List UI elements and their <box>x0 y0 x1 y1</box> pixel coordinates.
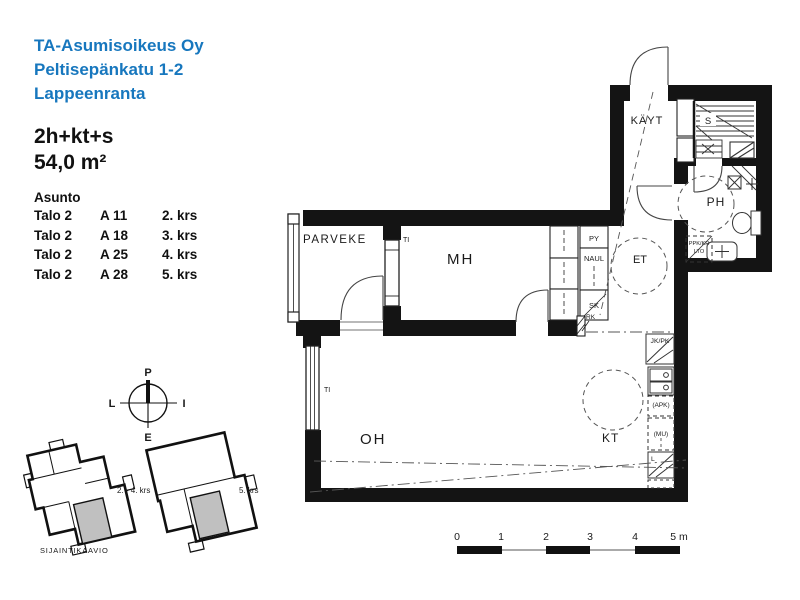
compass-west-label: L <box>109 398 116 410</box>
balcony-door <box>340 276 383 330</box>
compass-north-label: P <box>144 367 151 379</box>
shower-icon <box>728 166 758 190</box>
room-labels: PARVEKE MH OH ET KT KÄYT S PH <box>303 113 725 448</box>
living-room-window <box>306 346 319 430</box>
location-label-floors-2-4: 2. - 4. krs <box>117 486 150 495</box>
compass-east-label: I <box>182 398 185 410</box>
label-drying-cabinet: PY <box>589 234 599 243</box>
counter-end <box>648 480 674 488</box>
bedroom-balcony-window <box>385 240 399 306</box>
scale-tick-3: 3 <box>587 531 593 543</box>
room-label-living: OH <box>360 431 387 448</box>
label-electrical-panel: RK <box>586 314 596 321</box>
room-label-sauna: S <box>705 116 711 127</box>
floor-plan-page: TA-Asumisoikeus Oy Peltisepänkatu 1-2 La… <box>0 0 800 600</box>
scale-tick-4: 4 <box>632 531 638 543</box>
scale-tick-2: 2 <box>543 531 549 543</box>
compass: P E L I <box>109 367 186 444</box>
scale-tick-5: 5 m <box>670 531 688 543</box>
floor-plan: PARVEKE MH OH ET KT KÄYT S PH PY NAUL SK… <box>288 47 772 502</box>
sauna-fixtures <box>696 104 754 158</box>
hall-wardrobes <box>550 226 608 336</box>
room-label-bathroom: PH <box>707 195 726 209</box>
kitchen-turning-circle <box>583 370 643 430</box>
scale-tick-0: 0 <box>454 531 460 543</box>
stove-icon <box>648 367 674 395</box>
balcony-railing <box>288 214 299 322</box>
label-microwave: (MU) <box>654 431 668 438</box>
room-label-corridor: KÄYT <box>631 115 664 127</box>
location-diagrams: 2. - 4. krs 5. krs SIJAINTIKAAVIO <box>18 426 268 562</box>
bedroom-door <box>516 290 548 322</box>
scale-bar: 0 1 2 3 4 5 m <box>454 531 688 554</box>
bathroom-door <box>637 186 672 220</box>
sauna-heater-icon <box>730 142 754 158</box>
label-heat-recovery: LTO <box>694 249 705 255</box>
label-washer-dryer: PPK/KR <box>689 241 710 247</box>
label-supply-air-bedroom: TI <box>403 237 409 244</box>
label-stove: L <box>651 456 655 463</box>
room-label-bedroom: MH <box>447 251 474 268</box>
room-label-balcony: PARVEKE <box>303 234 367 246</box>
label-dishwasher: (APK) <box>652 402 669 409</box>
toilet-icon <box>733 211 762 235</box>
entry-turning-circle <box>611 238 667 294</box>
label-cleaning-closet: SK <box>589 301 599 310</box>
label-coat-rack: NAUL <box>584 254 604 263</box>
label-supply-air-living: TI <box>324 387 330 394</box>
compass-south-label: E <box>144 432 151 444</box>
plan-drawing: PARVEKE MH OH ET KT KÄYT S PH PY NAUL SK… <box>0 0 800 600</box>
scale-tick-1: 1 <box>498 531 504 543</box>
corridor-closets <box>677 99 694 162</box>
location-caption: SIJAINTIKAAVIO <box>40 546 109 555</box>
entry-door <box>630 47 668 85</box>
sink-icon <box>707 242 737 261</box>
location-label-floor-5: 5. krs <box>239 486 259 495</box>
room-label-entry: ET <box>633 254 647 266</box>
label-fridge-freezer: JK/PK <box>651 338 670 345</box>
room-label-kitchen: KT <box>602 431 619 445</box>
